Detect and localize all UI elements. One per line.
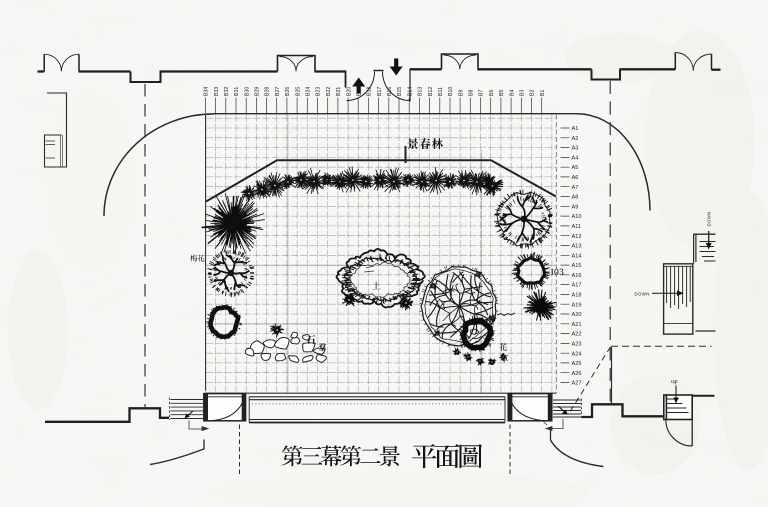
svg-text:A22: A22 — [572, 332, 582, 338]
svg-text:B5: B5 — [499, 90, 505, 96]
svg-text:B28: B28 — [265, 87, 271, 96]
svg-text:A10: A10 — [572, 214, 582, 220]
svg-text:B31: B31 — [234, 87, 240, 96]
svg-text:B21: B21 — [336, 87, 342, 96]
svg-text:B7: B7 — [479, 90, 485, 96]
svg-text:B33: B33 — [214, 87, 220, 96]
svg-text:DOWN: DOWN — [635, 291, 650, 296]
svg-text:A1: A1 — [572, 126, 579, 132]
svg-text:B1: B1 — [540, 90, 546, 96]
svg-text:DOWN: DOWN — [707, 211, 712, 226]
svg-text:A17: A17 — [572, 283, 582, 289]
svg-text:B24: B24 — [306, 87, 312, 96]
svg-text:A6: A6 — [572, 175, 579, 181]
svg-text:B8: B8 — [469, 90, 475, 96]
svg-text:B22: B22 — [326, 87, 332, 96]
svg-text:A3: A3 — [572, 146, 579, 152]
svg-text:A14: A14 — [572, 253, 582, 259]
svg-text:A25: A25 — [572, 361, 582, 367]
svg-text:B20: B20 — [346, 87, 352, 96]
svg-text:A24: A24 — [572, 351, 582, 357]
svg-text:B9: B9 — [458, 90, 464, 96]
svg-text:B23: B23 — [316, 87, 322, 96]
svg-text:A8: A8 — [572, 195, 579, 201]
svg-text:A11: A11 — [572, 224, 582, 230]
svg-text:B10: B10 — [448, 87, 454, 96]
svg-text:B13: B13 — [418, 87, 424, 96]
svg-text:A2: A2 — [572, 136, 579, 142]
svg-text:A26: A26 — [572, 371, 582, 377]
svg-text:B3: B3 — [520, 90, 526, 96]
svg-text:B27: B27 — [275, 87, 281, 96]
svg-text:B15: B15 — [397, 87, 403, 96]
svg-text:B34: B34 — [204, 87, 210, 96]
svg-text:A16: A16 — [572, 273, 582, 279]
svg-text:B2: B2 — [530, 90, 536, 96]
svg-text:A23: A23 — [572, 342, 582, 348]
svg-text:B17: B17 — [377, 87, 383, 96]
svg-text:A15: A15 — [572, 263, 582, 269]
svg-text:B32: B32 — [224, 87, 230, 96]
svg-text:A4: A4 — [572, 156, 579, 162]
svg-text:A13: A13 — [572, 244, 582, 250]
svg-text:A12: A12 — [572, 234, 582, 240]
svg-text:B12: B12 — [428, 87, 434, 96]
svg-text:A5: A5 — [572, 165, 579, 171]
svg-text:A27: A27 — [572, 381, 582, 387]
svg-text:B11: B11 — [438, 87, 444, 96]
svg-text:A7: A7 — [572, 185, 579, 191]
svg-text:B26: B26 — [285, 87, 291, 96]
svg-text:A20: A20 — [572, 312, 582, 318]
svg-text:B6: B6 — [489, 90, 495, 96]
svg-text:A19: A19 — [572, 302, 582, 308]
svg-text:A18: A18 — [572, 293, 582, 299]
svg-text:A21: A21 — [572, 322, 582, 328]
svg-text:B30: B30 — [244, 87, 250, 96]
svg-text:A9: A9 — [572, 204, 579, 210]
svg-text:B29: B29 — [255, 87, 261, 96]
svg-text:B4: B4 — [509, 90, 515, 96]
svg-text:B25: B25 — [295, 87, 301, 96]
